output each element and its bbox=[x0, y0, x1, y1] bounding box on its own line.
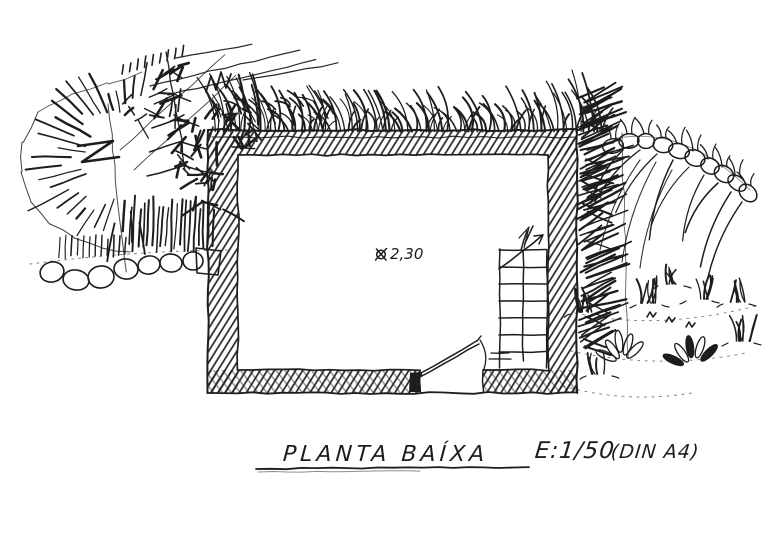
sketch-stroke bbox=[727, 156, 730, 167]
sketch-stroke bbox=[420, 344, 479, 377]
sketch-stroke bbox=[722, 343, 728, 346]
sketch-stroke bbox=[217, 142, 218, 165]
sketch-stroke bbox=[419, 341, 477, 374]
stone bbox=[38, 259, 66, 285]
sketch-stroke bbox=[83, 236, 84, 258]
sketch-stroke bbox=[554, 93, 567, 131]
sketch-stroke bbox=[108, 104, 126, 272]
sketch-stroke bbox=[56, 117, 91, 136]
sketch-stroke bbox=[122, 65, 123, 74]
sketch-stroke bbox=[28, 190, 69, 211]
sketch-stroke bbox=[700, 192, 731, 267]
sketch-stroke bbox=[165, 208, 168, 246]
crossed-circle-icon bbox=[374, 247, 388, 261]
height-value: 2,30 bbox=[390, 245, 423, 263]
sketch-stroke bbox=[133, 76, 135, 98]
sketch-stroke bbox=[143, 203, 145, 247]
sketch-stroke bbox=[123, 201, 125, 231]
sketch-stroke bbox=[754, 343, 761, 345]
sketch-stroke bbox=[172, 137, 186, 153]
sketch-stroke bbox=[499, 235, 543, 269]
stone bbox=[159, 253, 182, 273]
sketch-stroke bbox=[188, 174, 205, 175]
stone bbox=[183, 252, 203, 270]
sketch-stroke bbox=[238, 154, 548, 156]
sketch-stroke bbox=[635, 118, 644, 134]
sketch-stroke bbox=[147, 200, 149, 245]
sketch-stroke bbox=[698, 135, 701, 151]
sketch-stroke bbox=[182, 45, 184, 56]
sketch-stroke bbox=[108, 94, 113, 110]
sketch-stroke bbox=[152, 196, 153, 245]
wall-hatch bbox=[548, 130, 577, 393]
leaf bbox=[662, 352, 685, 368]
sketch-stroke bbox=[651, 167, 689, 225]
sketch-stroke bbox=[180, 199, 183, 244]
stone bbox=[61, 268, 90, 292]
sketch-stroke bbox=[107, 239, 108, 254]
stone bbox=[136, 254, 161, 276]
sketch-stroke bbox=[708, 202, 742, 277]
sketch-stroke bbox=[418, 372, 422, 376]
sketch-stroke bbox=[657, 125, 661, 138]
sketch-stroke bbox=[749, 320, 755, 341]
sketch-stroke bbox=[152, 55, 153, 66]
sketch-stroke bbox=[499, 267, 547, 268]
sketch-stroke bbox=[157, 70, 171, 80]
sketch-stroke bbox=[576, 130, 578, 393]
sketch-stroke bbox=[77, 238, 78, 255]
wall-hatch bbox=[208, 130, 577, 155]
sketch-stroke bbox=[522, 250, 523, 361]
sketch-stroke bbox=[637, 279, 642, 303]
sketch-stroke bbox=[499, 335, 547, 336]
sketch-stroke bbox=[596, 358, 597, 374]
sketch-stroke bbox=[89, 74, 107, 112]
sketch-stroke bbox=[116, 91, 120, 112]
sketch-stroke bbox=[197, 78, 215, 132]
sketch-stroke bbox=[604, 353, 605, 374]
staircase-drawing bbox=[489, 226, 548, 368]
sketch-stroke bbox=[612, 376, 619, 378]
wall-hatch bbox=[208, 130, 238, 393]
sketch-stroke bbox=[52, 101, 83, 124]
sketch-stroke bbox=[696, 279, 701, 299]
sketch-stroke bbox=[124, 80, 125, 103]
sketch-stroke bbox=[480, 340, 486, 369]
sketch-stroke bbox=[203, 202, 204, 249]
sketch-stroke bbox=[71, 236, 72, 256]
leaf bbox=[614, 330, 624, 353]
leaf bbox=[595, 348, 618, 364]
sketch-stroke bbox=[103, 199, 114, 230]
sketch-stroke bbox=[177, 162, 181, 177]
sketch-stroke bbox=[79, 77, 101, 113]
sketch-stroke bbox=[751, 174, 754, 186]
sketch-stroke bbox=[740, 160, 743, 176]
sketch-stroke bbox=[666, 127, 669, 138]
sketch-stroke bbox=[26, 166, 61, 170]
sketch-stroke bbox=[119, 236, 120, 255]
stone bbox=[87, 265, 115, 289]
sketch-stroke bbox=[38, 133, 85, 146]
drawing-title: PLANTA BAÍXA bbox=[282, 442, 489, 467]
sketch-stroke bbox=[499, 351, 547, 352]
sketch-stroke bbox=[32, 156, 71, 157]
terrain-right bbox=[563, 83, 761, 397]
sketch-stroke bbox=[135, 114, 146, 121]
floor-plan-sketch bbox=[0, 0, 770, 550]
sketch-stroke bbox=[395, 108, 412, 131]
sketch-stroke bbox=[137, 59, 138, 70]
wall-hatch bbox=[208, 370, 420, 393]
sketch-stroke bbox=[113, 235, 114, 257]
sketch-stroke bbox=[730, 316, 737, 341]
sketch-stroke bbox=[95, 235, 96, 256]
sketch-stroke bbox=[684, 286, 691, 288]
sketch-stroke bbox=[132, 196, 135, 252]
title-underline bbox=[256, 467, 529, 472]
sketch-stroke bbox=[630, 305, 636, 308]
sketch-stroke bbox=[145, 56, 146, 67]
sketch-stroke bbox=[406, 103, 420, 131]
sketch-canvas: 2,30 PLANTA BAÍXA E:1/50 (DIN A4) bbox=[0, 0, 770, 550]
sketch-stroke bbox=[258, 471, 420, 472]
wall-hatch bbox=[483, 370, 577, 393]
stone bbox=[637, 133, 654, 148]
sketch-stroke bbox=[662, 305, 669, 307]
sketch-stroke bbox=[101, 235, 102, 255]
sketch-stroke bbox=[157, 207, 160, 252]
sketch-stroke bbox=[188, 201, 191, 251]
sketch-stroke bbox=[76, 208, 85, 218]
sketch-stroke bbox=[175, 48, 177, 58]
sketch-stroke bbox=[717, 304, 723, 307]
sketch-stroke bbox=[179, 63, 189, 66]
sketch-stroke bbox=[632, 117, 635, 134]
sketch-stroke bbox=[130, 63, 131, 72]
leaf bbox=[603, 338, 622, 360]
sketch-stroke bbox=[647, 312, 656, 317]
stone bbox=[736, 181, 761, 206]
sketch-stroke bbox=[495, 104, 505, 131]
sketch-stroke bbox=[176, 44, 252, 58]
sketch-stroke bbox=[713, 144, 716, 159]
sketch-stroke bbox=[256, 467, 529, 469]
sketch-stroke bbox=[682, 127, 685, 144]
sketch-stroke bbox=[36, 119, 74, 135]
sketch-stroke bbox=[181, 179, 197, 189]
sketch-stroke bbox=[199, 209, 201, 245]
sketch-stroke bbox=[666, 265, 667, 284]
sketch-stroke bbox=[159, 93, 172, 94]
sketch-stroke bbox=[226, 113, 237, 114]
scale-label: E:1/50 bbox=[534, 438, 617, 464]
sketch-stroke bbox=[743, 316, 744, 341]
sketch-stroke bbox=[160, 207, 163, 246]
sketch-stroke bbox=[95, 205, 106, 228]
sketch-stroke bbox=[491, 353, 509, 354]
sketch-stroke bbox=[184, 200, 186, 251]
sketch-stroke bbox=[680, 301, 686, 304]
ceiling-height-annotation: 2,30 bbox=[374, 245, 423, 263]
sketch-stroke bbox=[580, 376, 586, 379]
sketch-stroke bbox=[160, 53, 162, 63]
door-drawing bbox=[418, 336, 486, 377]
sketch-stroke bbox=[58, 148, 85, 152]
paper-size-label: (DIN A4) bbox=[610, 441, 701, 463]
sketch-stroke bbox=[171, 200, 172, 252]
sketch-stroke bbox=[208, 129, 577, 131]
sketch-stroke bbox=[38, 72, 142, 112]
sketch-stroke bbox=[65, 235, 66, 259]
sketch-stroke bbox=[622, 162, 656, 262]
sketch-stroke bbox=[712, 301, 719, 303]
sketch-stroke bbox=[243, 63, 338, 80]
sketch-stroke bbox=[642, 284, 647, 303]
sketch-stroke bbox=[649, 120, 652, 134]
sketch-stroke bbox=[649, 160, 673, 240]
sketch-stroke bbox=[152, 119, 178, 128]
sketch-stroke bbox=[174, 204, 177, 249]
sketch-stroke bbox=[59, 238, 60, 258]
sketch-stroke bbox=[686, 322, 695, 327]
sketch-stroke bbox=[563, 386, 692, 397]
sketch-stroke bbox=[89, 237, 90, 257]
